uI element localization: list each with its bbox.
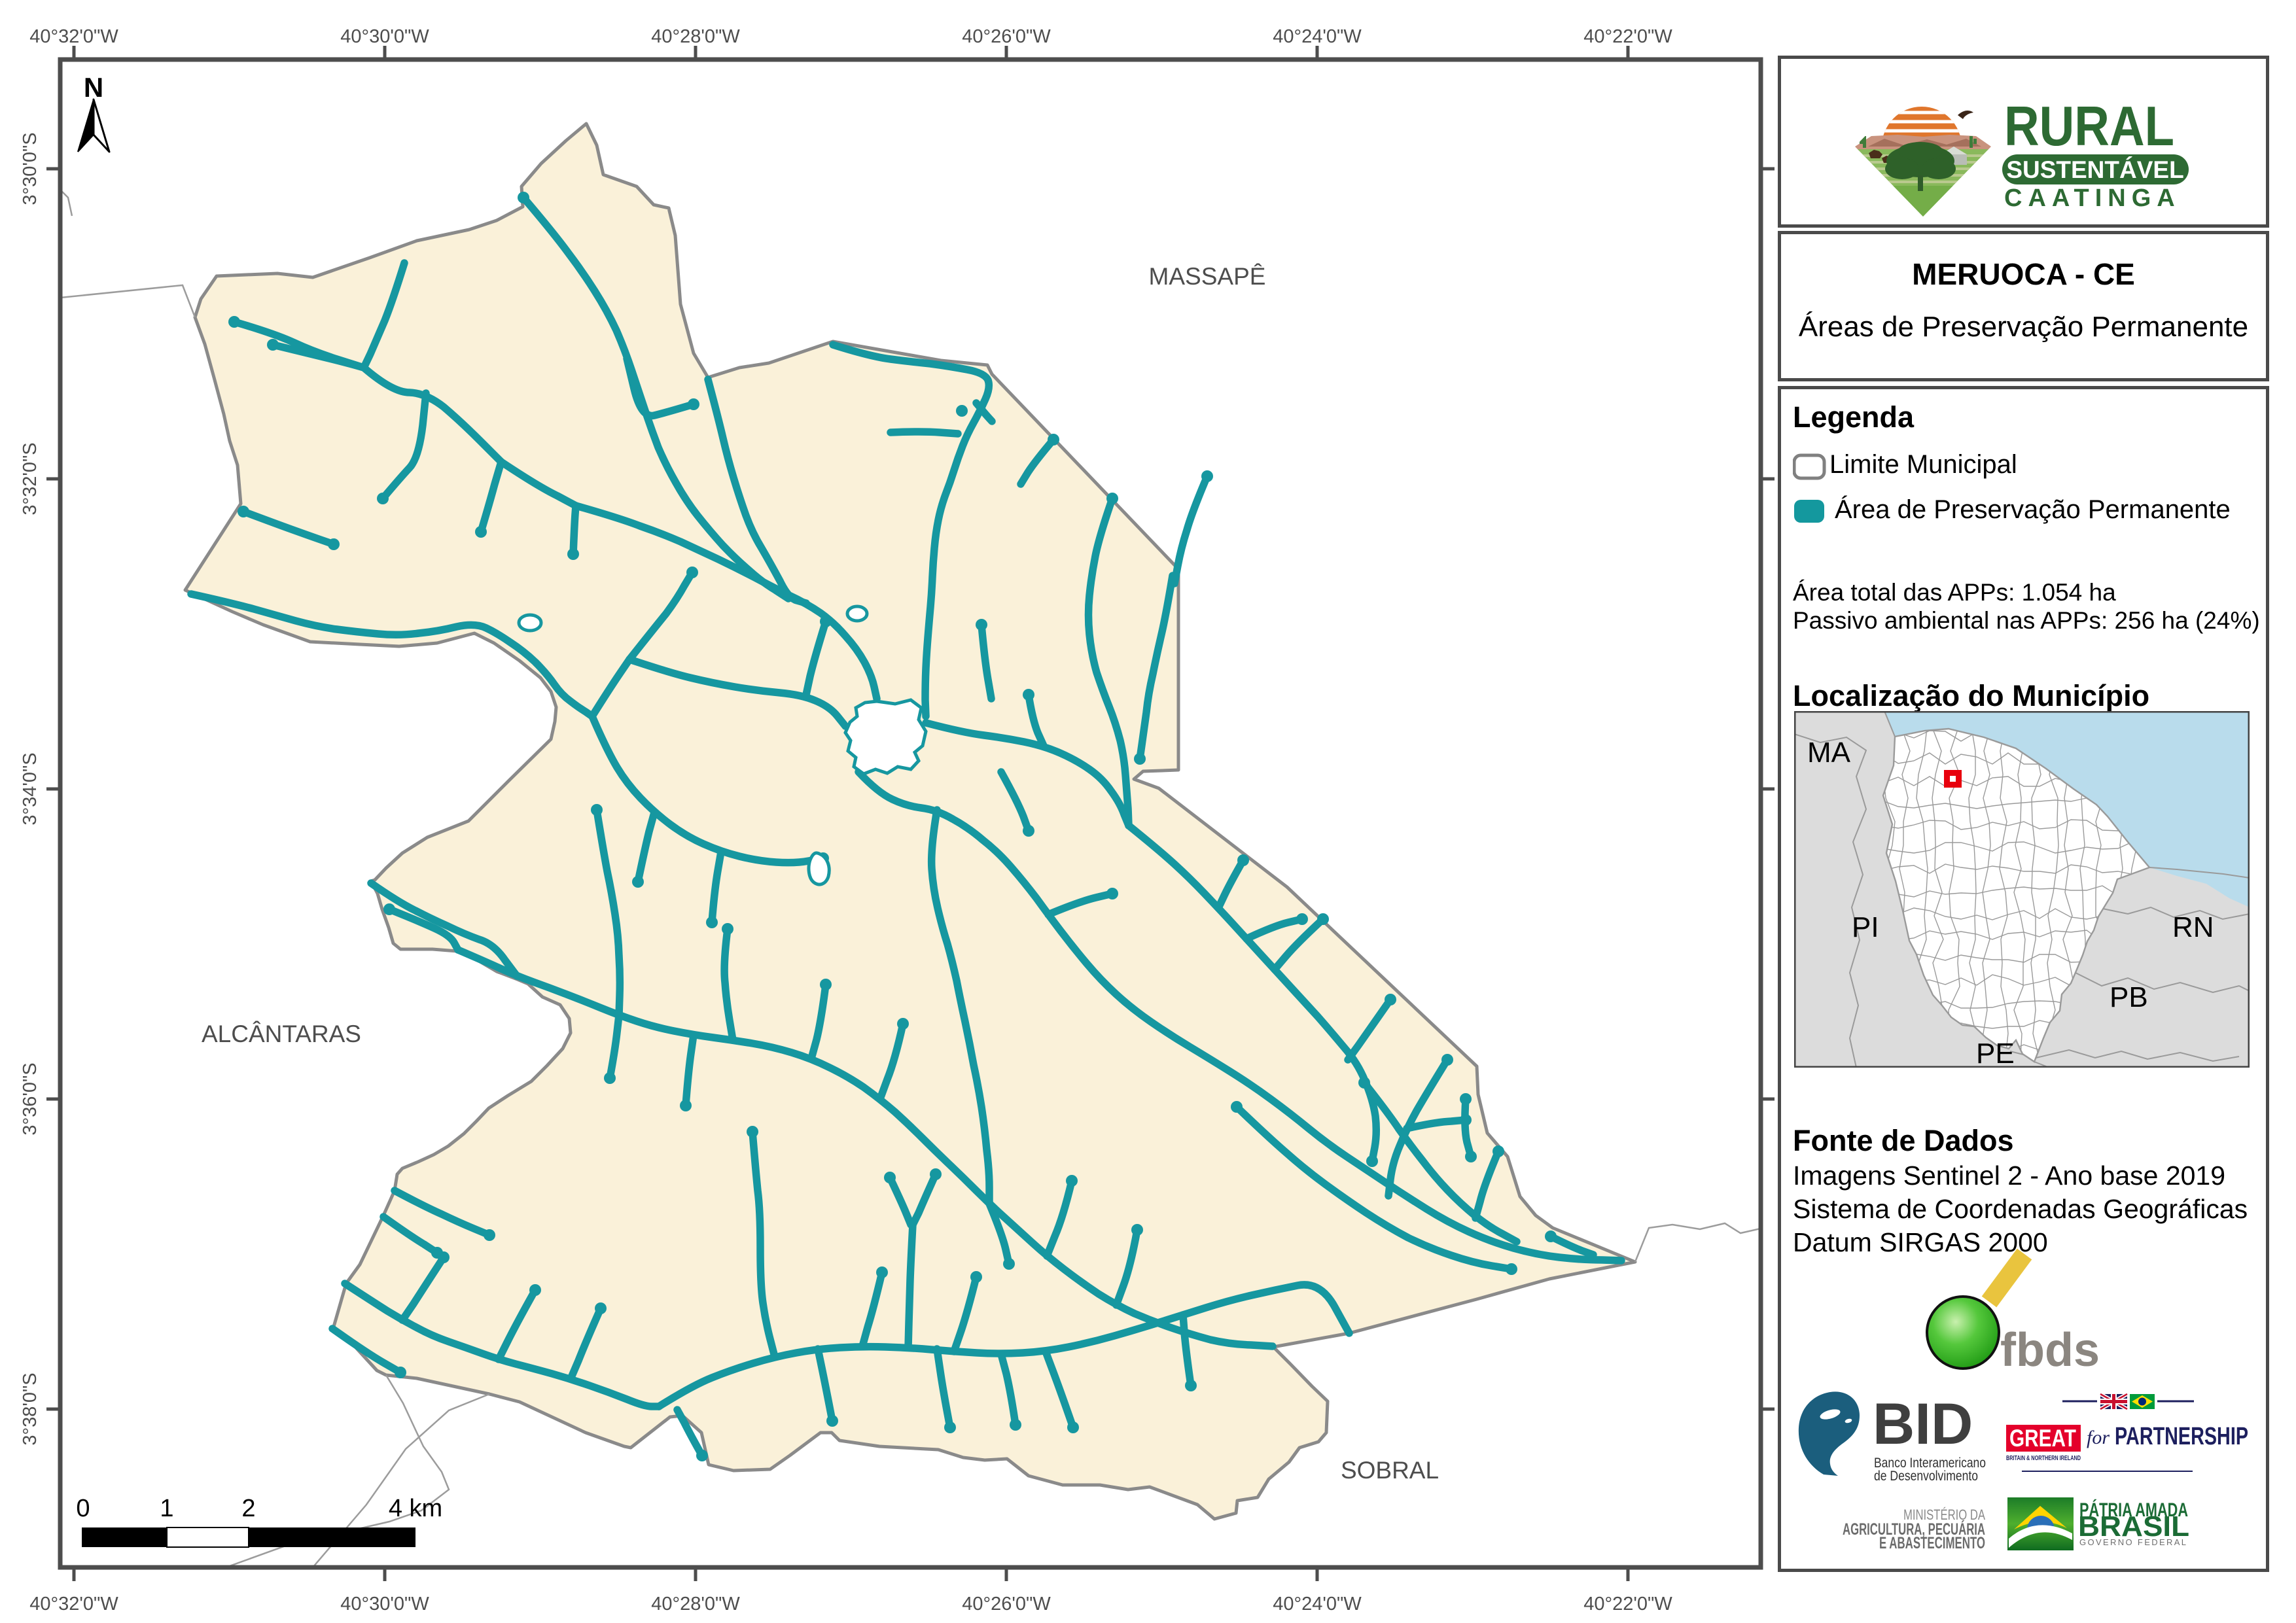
svg-text:CAATINGA: CAATINGA — [2004, 184, 2181, 212]
svg-text:E ABASTECIMENTO: E ABASTECIMENTO — [1879, 1534, 1985, 1552]
svg-text:40°24'0"W: 40°24'0"W — [1273, 26, 1362, 47]
svg-text:PB: PB — [2110, 981, 2148, 1013]
svg-text:40°30'0"W: 40°30'0"W — [340, 26, 429, 47]
svg-text:RN: RN — [2172, 911, 2214, 943]
svg-text:PARTNERSHIP: PARTNERSHIP — [2115, 1423, 2248, 1450]
svg-text:1: 1 — [160, 1495, 173, 1522]
svg-text:ALCÂNTARAS: ALCÂNTARAS — [202, 1021, 361, 1047]
svg-text:SUSTENTÁVEL: SUSTENTÁVEL — [2006, 156, 2183, 183]
svg-text:40°24'0"W: 40°24'0"W — [1273, 1594, 1362, 1614]
svg-text:for: for — [2087, 1427, 2110, 1448]
svg-text:3°34'0"S: 3°34'0"S — [20, 752, 41, 825]
svg-text:MASSAPÊ: MASSAPÊ — [1149, 263, 1266, 290]
svg-text:2: 2 — [241, 1495, 255, 1522]
svg-text:de Desenvolvimento: de Desenvolvimento — [1874, 1469, 1978, 1484]
svg-text:3°30'0"S: 3°30'0"S — [20, 132, 41, 205]
svg-text:40°22'0"W: 40°22'0"W — [1583, 1594, 1672, 1614]
svg-text:N: N — [84, 72, 103, 103]
svg-text:40°28'0"W: 40°28'0"W — [651, 26, 740, 47]
svg-text:40°22'0"W: 40°22'0"W — [1583, 26, 1672, 47]
svg-text:3°38'0"S: 3°38'0"S — [20, 1372, 41, 1445]
svg-text:3°32'0"S: 3°32'0"S — [20, 442, 41, 515]
svg-text:40°32'0"W: 40°32'0"W — [29, 1594, 118, 1614]
svg-text:40°32'0"W: 40°32'0"W — [29, 26, 118, 47]
svg-text:PE: PE — [1976, 1038, 2015, 1068]
svg-text:40°30'0"W: 40°30'0"W — [340, 1594, 429, 1614]
svg-text:40°26'0"W: 40°26'0"W — [962, 26, 1051, 47]
svg-text:40°26'0"W: 40°26'0"W — [962, 1594, 1051, 1614]
svg-text:GREAT: GREAT — [2009, 1425, 2076, 1452]
svg-text:SOBRAL: SOBRAL — [1341, 1457, 1439, 1484]
svg-text:RURAL: RURAL — [2004, 96, 2174, 158]
svg-text:BRITAIN & NORTHERN IRELAND: BRITAIN & NORTHERN IRELAND — [2006, 1454, 2081, 1462]
svg-text:BID: BID — [1873, 1391, 1973, 1456]
svg-text:MA: MA — [1807, 737, 1851, 769]
svg-text:PI: PI — [1852, 911, 1879, 943]
svg-text:4 km: 4 km — [389, 1495, 442, 1522]
svg-text:fbds: fbds — [2000, 1324, 2100, 1374]
svg-text:40°28'0"W: 40°28'0"W — [651, 1594, 740, 1614]
svg-text:3°36'0"S: 3°36'0"S — [20, 1062, 41, 1135]
svg-text:0: 0 — [76, 1495, 90, 1522]
